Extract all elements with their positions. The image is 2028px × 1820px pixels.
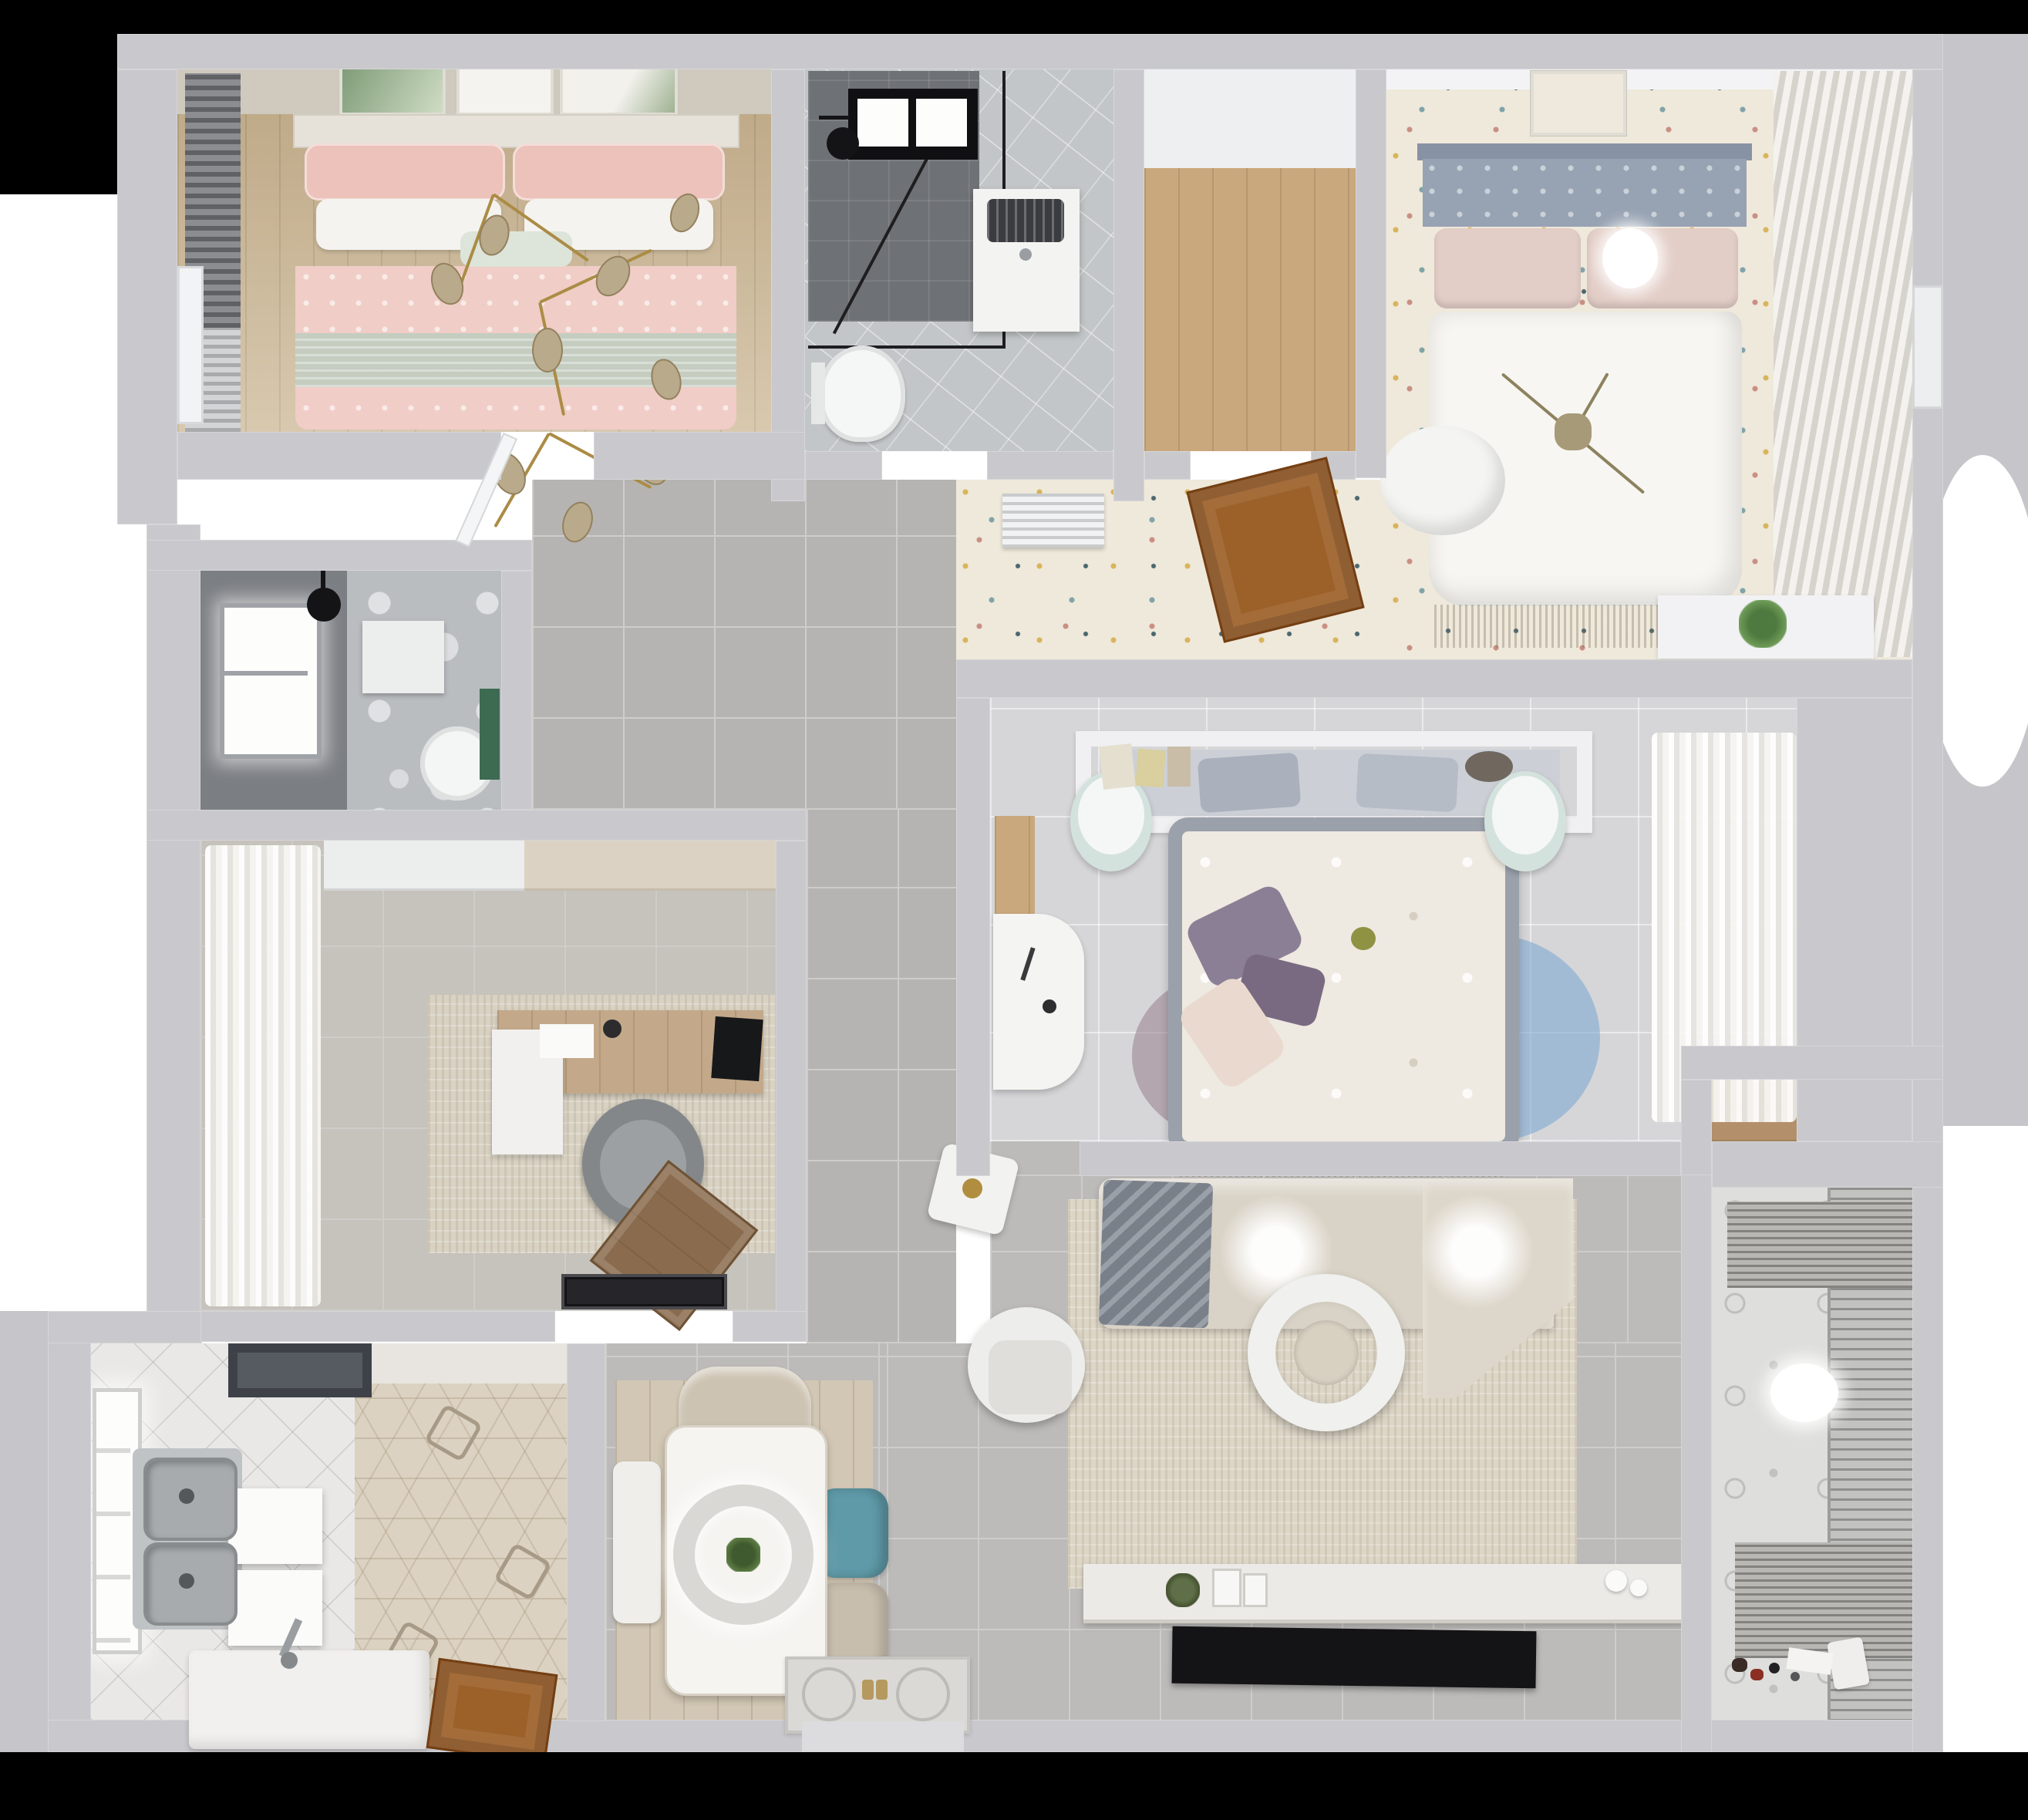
frame-top-bar xyxy=(0,0,2028,34)
sink-drain-2 xyxy=(179,1573,194,1589)
wall-closet-balcony-left xyxy=(1681,1080,1712,1175)
toilet-main xyxy=(819,345,905,442)
wall-top xyxy=(117,34,1943,69)
cabinet-study-beige xyxy=(524,841,776,891)
ceiling-light-master xyxy=(1602,228,1658,288)
window-kitchen-bars xyxy=(96,1392,130,1643)
corridor-floor-b xyxy=(807,810,956,1343)
pendant-plant-center xyxy=(726,1538,760,1572)
dining-bench xyxy=(613,1461,661,1623)
pillow-pink-left xyxy=(305,143,505,201)
console-green-plate xyxy=(1166,1573,1200,1607)
exterior-right-white xyxy=(1943,1126,2028,1752)
washing-machine-drum xyxy=(987,199,1064,242)
bean-bag xyxy=(1380,426,1505,535)
duvet-green-dot xyxy=(1351,927,1376,950)
ottoman-right-top xyxy=(1492,776,1558,854)
curtain-master-right xyxy=(1774,71,1912,657)
sofa-light-glow-2 xyxy=(1419,1194,1534,1309)
toilet-main-tank xyxy=(811,362,825,424)
desk-pad xyxy=(540,1024,594,1058)
skylight-pane-left xyxy=(857,99,908,147)
wall-study-bottom-b xyxy=(733,1311,807,1342)
wall-bathroom-main-bottom-b xyxy=(987,451,1113,480)
wall-bedroom-pink-bottom-b xyxy=(594,432,805,480)
door-white-right-wall xyxy=(1912,285,1943,409)
frame-topleft-block xyxy=(0,34,117,194)
toy-2 xyxy=(1750,1669,1764,1680)
shelf-books-1 xyxy=(1099,743,1136,790)
wall-kitchen-dining xyxy=(567,1343,605,1721)
door-white-left-wall xyxy=(177,266,204,424)
doormat-study xyxy=(561,1274,727,1309)
toy-4 xyxy=(1791,1672,1800,1681)
shower-head-ensuite xyxy=(307,588,341,622)
armchair-seat xyxy=(989,1340,1072,1414)
console-frame-2 xyxy=(1243,1573,1268,1607)
desk-center-white xyxy=(993,914,1084,1090)
washing-machine-dial xyxy=(1019,248,1032,261)
shelf-bowl xyxy=(1465,751,1513,782)
wall-bathroom-main-right xyxy=(1113,69,1144,501)
wall-closet-balcony-top xyxy=(1681,1046,1943,1080)
monitor-study xyxy=(711,1016,763,1081)
closet-hall-floor xyxy=(1144,168,1356,451)
wall-bedroom-center-top xyxy=(956,659,1912,698)
wall-bathroom-ensuite-right xyxy=(501,571,532,810)
tv-panel xyxy=(1172,1626,1537,1689)
wall-study-top xyxy=(147,810,807,841)
floorplan-canvas xyxy=(0,0,2028,1820)
doormat-gold-handle-2 xyxy=(876,1680,888,1700)
closet-hall-ceiling xyxy=(1144,69,1356,168)
wall-bathroom-main-bottom-a xyxy=(805,451,882,480)
exterior-left-strip xyxy=(0,1311,48,1752)
artwork-master xyxy=(1531,71,1626,136)
wall-left-top xyxy=(117,69,177,524)
pillow-pink-right xyxy=(513,143,725,201)
sofa-blanket xyxy=(1099,1180,1213,1329)
artwork-botanical-1 xyxy=(339,62,446,116)
console-vase-2 xyxy=(1630,1579,1647,1596)
chandelier-master-center xyxy=(1555,413,1592,450)
kitchen-faucet-base xyxy=(281,1652,298,1669)
green-accent-strip xyxy=(480,689,500,780)
balcony-ceiling-light xyxy=(1770,1363,1838,1422)
air-vent xyxy=(1002,494,1104,548)
skylight-pane-right xyxy=(916,99,967,147)
shelf-books-2 xyxy=(1135,749,1165,787)
shower-head-icon xyxy=(827,127,859,160)
kitchen-cabinet-white-2 xyxy=(228,1570,322,1646)
entry-door-gap xyxy=(802,1721,964,1752)
frame-bottom-bar xyxy=(0,1752,2028,1820)
drying-rack-bottom xyxy=(1735,1542,1912,1658)
curtain-study xyxy=(205,845,321,1306)
headboard-pillow-2 xyxy=(1356,753,1458,813)
desk-center-dot xyxy=(1043,999,1056,1013)
console-vase-1 xyxy=(1605,1570,1627,1592)
corridor-floor-a xyxy=(532,480,956,810)
range-hood xyxy=(228,1343,372,1397)
bed-master-headboard xyxy=(1423,159,1747,227)
doormat-gold-handle-1 xyxy=(862,1680,874,1700)
wall-closet-hall-bottom-a xyxy=(1144,451,1191,480)
coffee-table-inner-disc xyxy=(1294,1320,1359,1385)
doormat-swirl-left xyxy=(802,1667,856,1721)
window-ensuite-mullion-h xyxy=(224,671,308,676)
bed-master-headboard-bar xyxy=(1417,143,1752,160)
wall-closet-hall-right xyxy=(1356,69,1386,478)
side-table-gold-decor xyxy=(962,1178,982,1198)
drying-rack-top xyxy=(1727,1202,1912,1288)
wall-study-right xyxy=(776,841,807,1342)
shelf-books-3 xyxy=(1167,747,1191,787)
kitchen-wood-door xyxy=(426,1658,558,1765)
plant-on-shelf xyxy=(1739,600,1787,648)
window-ensuite xyxy=(220,603,322,759)
wall-left-kitchen xyxy=(48,1311,91,1752)
cabinet-study-white xyxy=(324,841,524,891)
doormat-swirl-right xyxy=(896,1667,950,1721)
desk-mug xyxy=(603,1020,622,1038)
toy-3 xyxy=(1769,1663,1780,1673)
headboard-pillow-1 xyxy=(1198,753,1302,814)
wall-study-bottom-a xyxy=(200,1311,555,1342)
vanity-ensuite xyxy=(362,621,444,693)
wall-bedroom-pink-bottom-a xyxy=(177,432,501,480)
kitchen-cabinet-white-1 xyxy=(228,1488,322,1564)
shower-head-arm xyxy=(819,116,850,120)
toy-1 xyxy=(1732,1658,1747,1672)
wall-bedroom-center-bottom xyxy=(1080,1141,1681,1176)
wall-bathroom-ensuite-top xyxy=(147,540,532,571)
wall-balcony-top xyxy=(1712,1141,1943,1188)
counter-slab xyxy=(189,1650,430,1749)
wall-kitchen-step xyxy=(48,1311,202,1343)
wall-left-mid xyxy=(147,524,200,1342)
counter-top-kitchen xyxy=(372,1343,567,1384)
chandelier-bulb-3 xyxy=(532,328,563,372)
pillow-master-left xyxy=(1434,228,1581,308)
wall-bedroom-center-left xyxy=(956,698,990,1176)
sink-drain-1 xyxy=(179,1488,194,1504)
console-frame-1 xyxy=(1212,1569,1241,1607)
wall-living-balcony xyxy=(1681,1172,1712,1752)
